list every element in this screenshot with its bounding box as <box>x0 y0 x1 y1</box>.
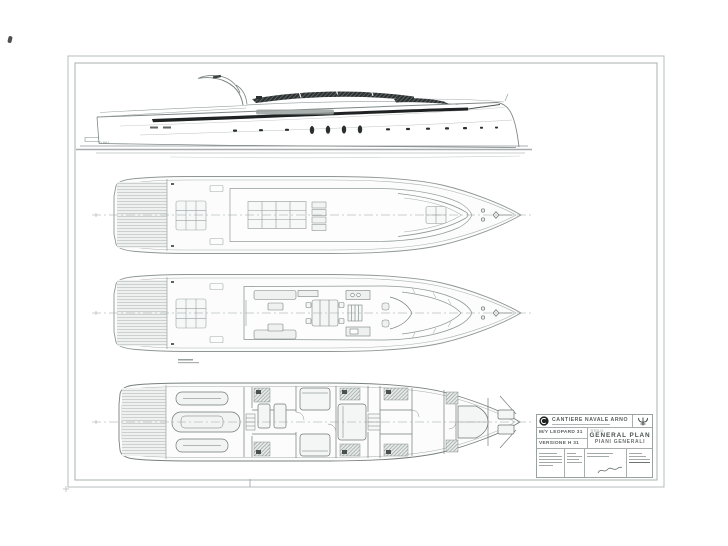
title-block-header: CANTIERE NAVALE ARNO <box>537 415 652 428</box>
trident-icon <box>632 415 652 427</box>
drawing-title-cell: TITOLO: GENERAL PLAN PIANI GENERALI <box>588 428 652 448</box>
company-cell: CANTIERE NAVALE ARNO <box>551 417 632 425</box>
swim-platform <box>85 138 99 142</box>
spray-rail <box>140 120 512 135</box>
title-block-mid: M/Y LEOPARD 31 VERSIONE H 31 TITOLO: GEN… <box>537 428 652 449</box>
company-name: CANTIERE NAVALE ARNO <box>552 417 632 423</box>
bow-stem <box>497 103 519 148</box>
title-label: TITOLO: <box>590 429 604 433</box>
waterline-label: D.W.L. <box>99 140 111 145</box>
revision-table-cell <box>537 449 565 477</box>
company-address-line <box>552 424 610 425</box>
helm-seat <box>382 320 389 327</box>
model-version: VERSIONE H 31 <box>537 439 587 449</box>
drawing-number-cell <box>627 449 652 477</box>
aft-rail <box>100 106 246 113</box>
glazing-end-post <box>256 96 262 99</box>
helm-seat <box>382 303 389 310</box>
hull-bottom <box>99 144 516 148</box>
scale-note-placeholder <box>178 362 199 363</box>
scale-cell <box>565 449 585 477</box>
jackstaff <box>505 94 508 101</box>
keel-shadow-line <box>170 156 520 158</box>
drawing-sheet-photo: D.W.L. <box>0 0 728 546</box>
side-profile-view: D.W.L. <box>76 75 532 158</box>
sheer-stripe-taper <box>468 105 500 110</box>
model-name: M/Y LEOPARD 31 <box>537 428 587 439</box>
model-cell: M/Y LEOPARD 31 VERSIONE H 31 <box>537 428 588 448</box>
scale-note-placeholder <box>178 359 193 361</box>
hull-vent <box>163 127 171 129</box>
title-block-bottom <box>537 449 652 477</box>
hull-vent <box>150 127 158 129</box>
aft-sunpad-profile <box>256 110 334 115</box>
shipyard-roundel-icon <box>537 416 551 426</box>
drawing-subtitle: PIANI GENERALI <box>595 439 645 445</box>
main-deck-plan <box>92 275 533 364</box>
porthole-row <box>233 125 498 134</box>
lower-deck-plan <box>92 383 534 461</box>
upper-deck-plan <box>92 177 533 254</box>
arch-wing <box>198 75 240 93</box>
transom <box>97 117 99 144</box>
approval-cell <box>585 449 627 477</box>
title-block: CANTIERE NAVALE ARNO M/Y LEOPARD 31 VERS… <box>536 414 653 478</box>
signature-scribble <box>597 465 623 475</box>
